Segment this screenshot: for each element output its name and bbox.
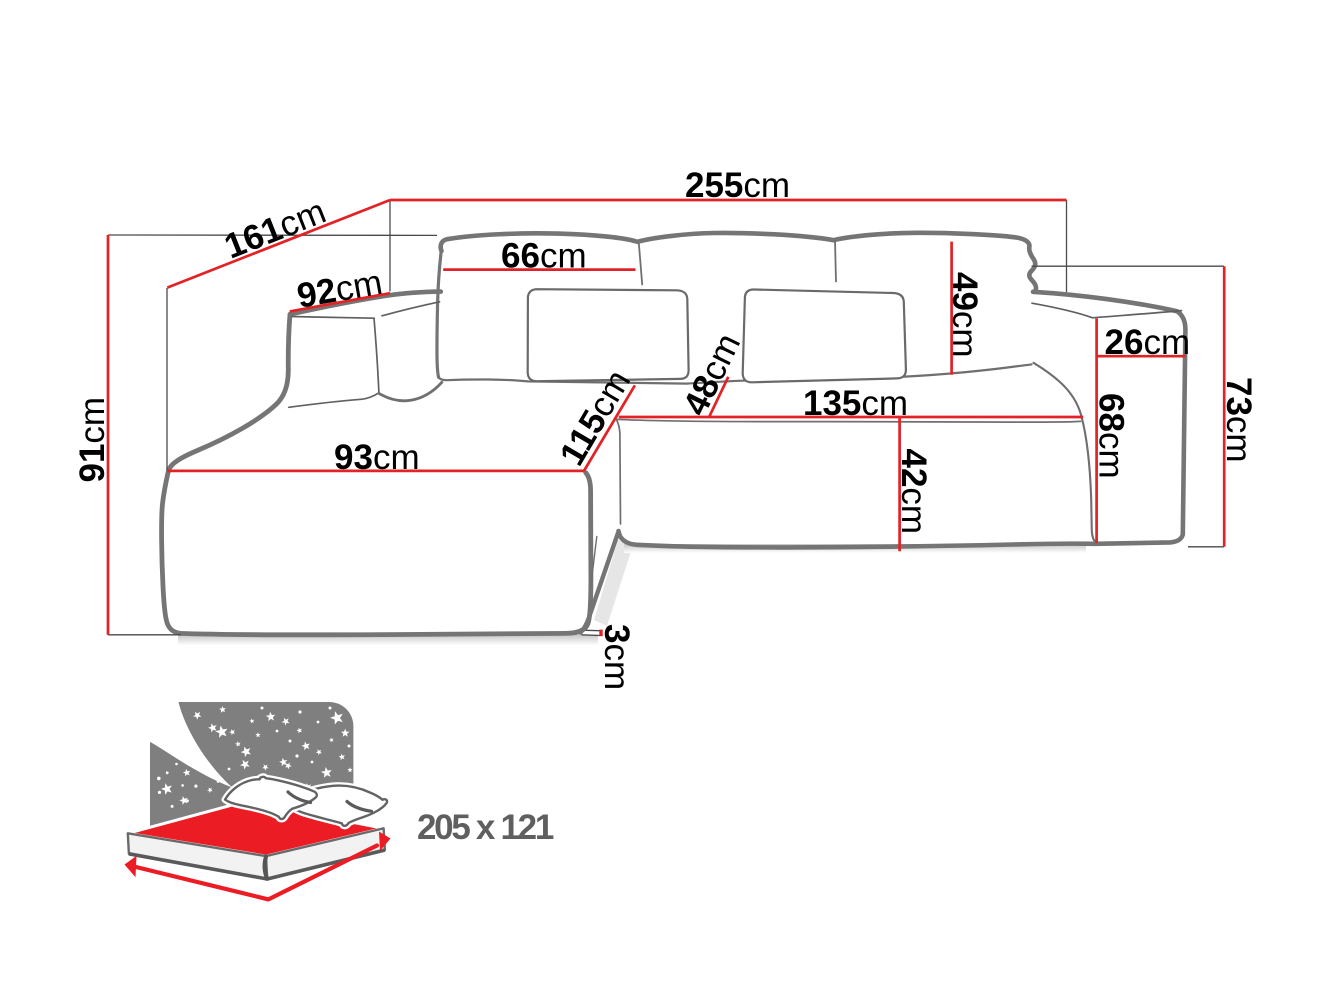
svg-text:26cm: 26cm — [1105, 323, 1191, 362]
svg-text:3cm: 3cm — [597, 624, 636, 690]
svg-text:42cm: 42cm — [894, 449, 933, 535]
svg-text:135cm: 135cm — [803, 384, 908, 423]
svg-text:91cm: 91cm — [73, 397, 112, 483]
svg-text:93cm: 93cm — [334, 438, 420, 477]
svg-text:205 x 121: 205 x 121 — [417, 808, 554, 847]
svg-text:66cm: 66cm — [501, 237, 587, 276]
svg-text:255cm: 255cm — [685, 166, 790, 205]
svg-text:68cm: 68cm — [1092, 393, 1131, 479]
svg-text:73cm: 73cm — [1219, 377, 1258, 463]
svg-text:49cm: 49cm — [945, 272, 984, 358]
